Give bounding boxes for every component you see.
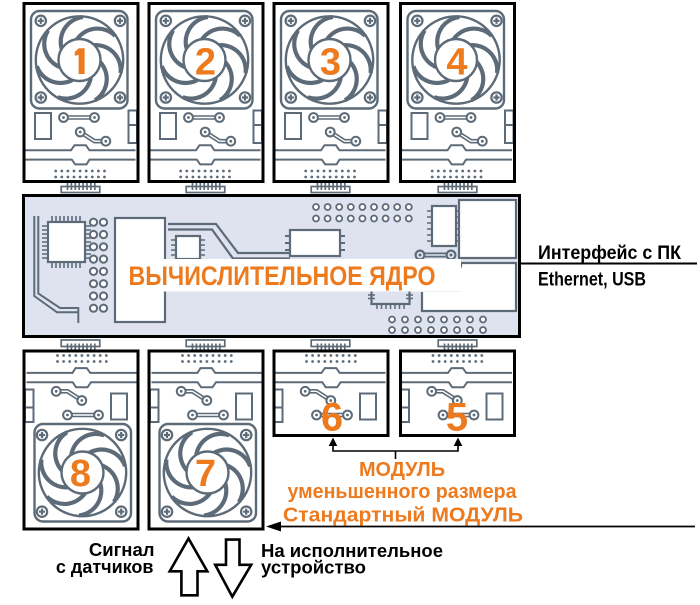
svg-text:МОДУЛЬ: МОДУЛЬ (359, 459, 445, 481)
svg-text:Интерфейс с ПК: Интерфейс с ПК (538, 242, 681, 264)
svg-text:3: 3 (320, 42, 341, 84)
svg-text:4: 4 (446, 42, 467, 84)
svg-text:2: 2 (195, 42, 216, 84)
svg-text:ВЫЧИСЛИТЕЛЬНОЕ ЯДРО: ВЫЧИСЛИТЕЛЬНОЕ ЯДРО (129, 261, 436, 291)
svg-text:устройство: устройство (261, 557, 366, 578)
svg-text:8: 8 (70, 453, 91, 495)
svg-text:5: 5 (446, 396, 468, 440)
svg-text:7: 7 (195, 453, 216, 495)
svg-text:Ethernet, USB: Ethernet, USB (538, 269, 646, 291)
svg-text:с датчиков: с датчиков (56, 557, 154, 577)
svg-text:Стандартный МОДУЛЬ: Стандартный МОДУЛЬ (283, 505, 523, 527)
svg-text:уменьшенного размера: уменьшенного размера (288, 481, 518, 503)
svg-text:6: 6 (321, 396, 343, 440)
